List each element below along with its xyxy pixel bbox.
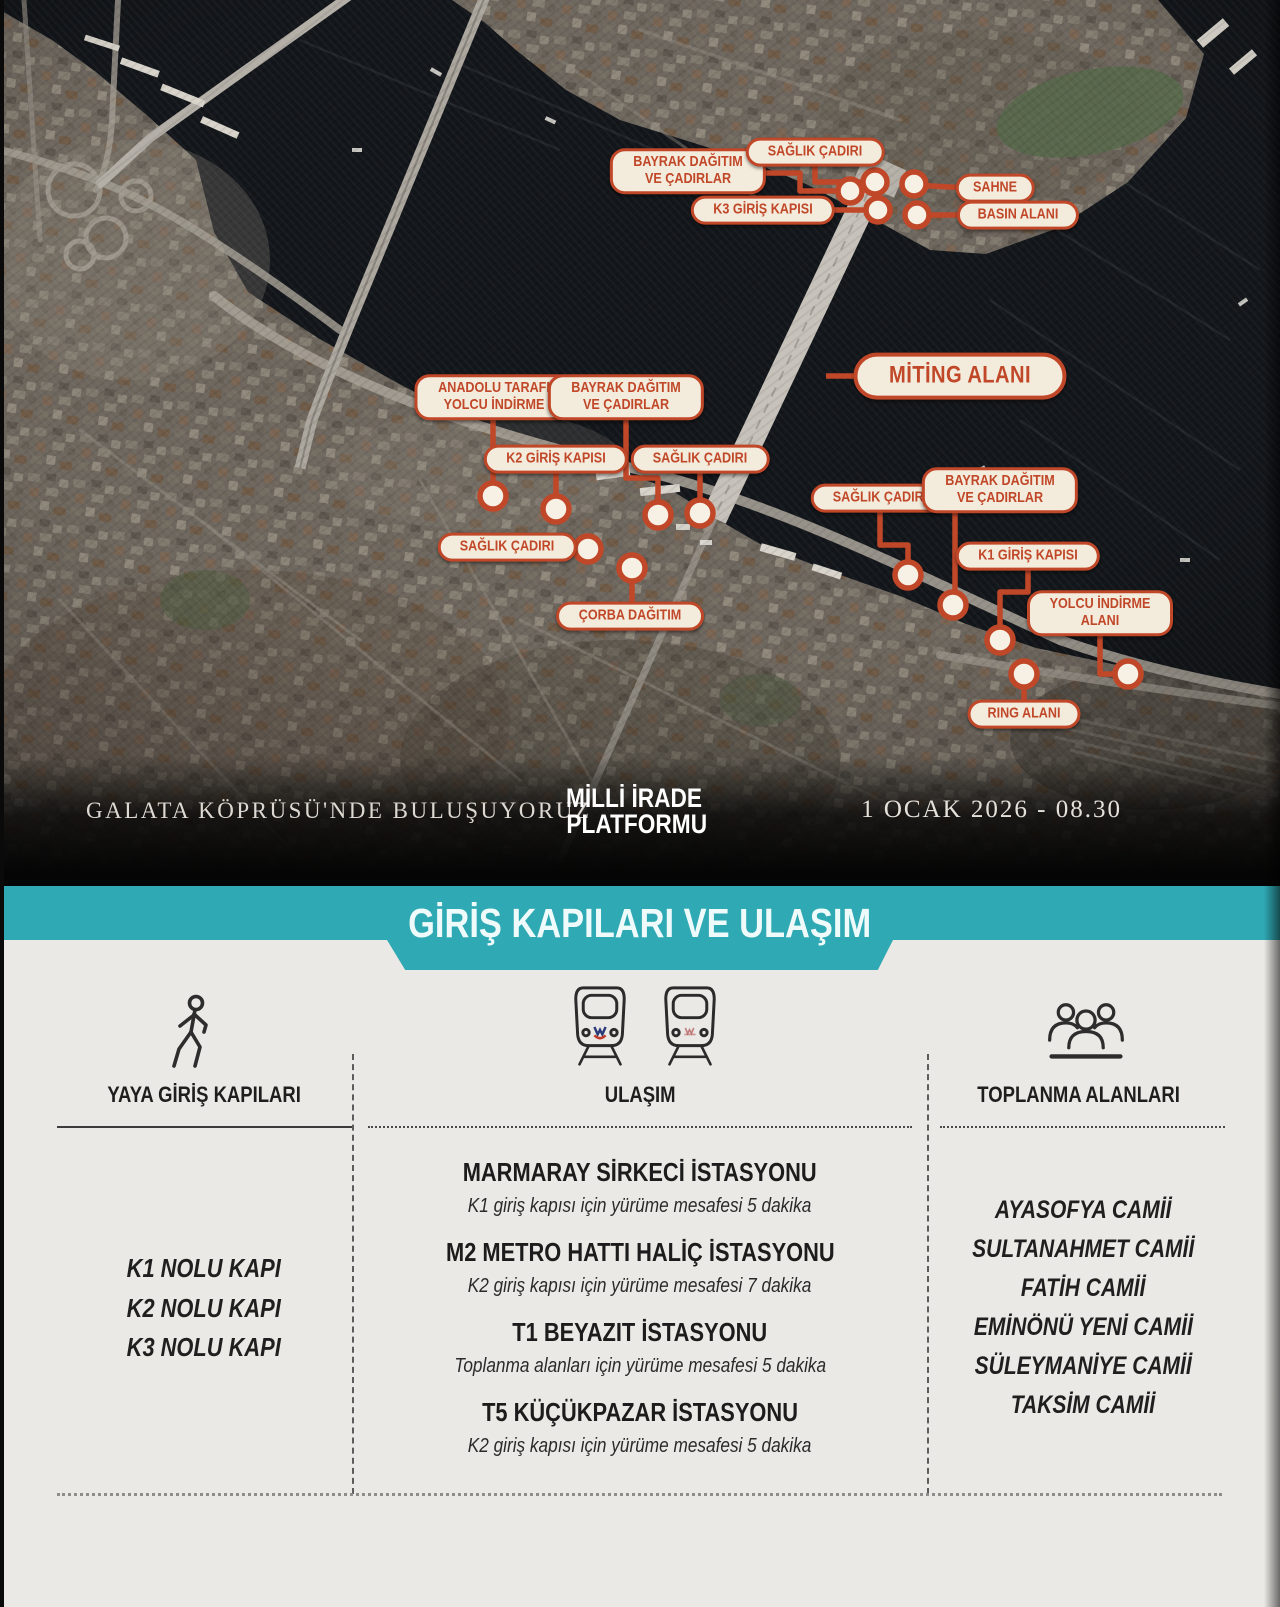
station-walk-distance: K2 giriş kapısı için yürüme mesafesi 7 d… <box>368 1269 912 1302</box>
right-edge-shadow <box>1264 0 1280 1607</box>
map-callout-yolcu-i-ndi-rme-alani: YOLCU İNDİRMEALANI <box>1027 590 1173 636</box>
gathering-list: AYASOFYA CAMİİSULTANAHMET CAMİİFATİH CAM… <box>940 1191 1226 1425</box>
gathering-item: SULTANAHMET CAMİİ <box>940 1230 1226 1269</box>
gate-item: K2 NOLU KAPI <box>58 1289 350 1329</box>
station-entry: T5 KÜÇÜKPAZAR İSTASYONUK2 giriş kapısı i… <box>368 1395 912 1462</box>
gate-item: K1 NOLU KAPI <box>58 1249 350 1289</box>
map-callout-sa-lik-adiri: SAĞLIK ÇADIRI <box>631 445 770 474</box>
station-walk-distance: K1 giriş kapısı için yürüme mesafesi 5 d… <box>368 1189 912 1222</box>
callout-leaders <box>0 0 1280 886</box>
map-callout-bayrak-da-itim-ve-adirlar: BAYRAK DAĞITIMVE ÇADIRLAR <box>610 148 766 194</box>
milli-irade-platformu-logo: MİLLİ İRADE PLATFORMU <box>553 786 703 837</box>
gathering-item: SÜLEYMANİYE CAMİİ <box>940 1347 1226 1386</box>
map-callout-orba-da-itim: ÇORBA DAĞITIM <box>556 602 704 631</box>
info-section: GİRİŞ KAPILARI VE ULAŞIM <box>0 886 1280 1607</box>
section-title: GİRİŞ KAPILARI VE ULAŞIM <box>0 900 1280 947</box>
divider-left <box>352 1054 354 1494</box>
satellite-map: BAYRAK DAĞITIMVE ÇADIRLARSAĞLIK ÇADIRIK3… <box>0 0 1280 886</box>
map-callout-bayrak-da-itim-ve-adirlar: BAYRAK DAĞITIMVE ÇADIRLAR <box>548 374 704 420</box>
station-name: T1 BEYAZIT İSTASYONU <box>368 1315 912 1349</box>
map-callout-k2-gi-ri-kapisi: K2 GİRİŞ KAPISI <box>484 445 628 474</box>
map-callout-k3-gi-ri-kapisi: K3 GİRİŞ KAPISI <box>691 196 835 225</box>
marmaray-train-icon <box>660 986 720 1073</box>
station-walk-distance: K2 giriş kapısı için yürüme mesafesi 5 d… <box>368 1429 912 1462</box>
gathering-item: AYASOFYA CAMİİ <box>940 1191 1226 1230</box>
map-callout-k1-gi-ri-kapisi: K1 GİRİŞ KAPISI <box>956 542 1100 571</box>
map-caption-bar: GALATA KÖPRÜSÜ'NDE BULUŞUYORUZ MİLLİ İRA… <box>0 756 1280 886</box>
map-callout-bayrak-da-itim-ve-adirlar: BAYRAK DAĞITIMVE ÇADIRLAR <box>922 467 1078 513</box>
map-callout-mi-ti-ng-alani: MİTİNG ALANI <box>853 353 1066 400</box>
map-callout-basin-alani: BASIN ALANI <box>957 201 1079 230</box>
gates-column-header: YAYA GİRİŞ KAPILARI <box>58 1082 350 1108</box>
station-name: MARMARAY SİRKECİ İSTASYONU <box>368 1155 912 1189</box>
stations-list: MARMARAY SİRKECİ İSTASYONUK1 giriş kapıs… <box>368 1155 912 1475</box>
gates-list: K1 NOLU KAPIK2 NOLU KAPIK3 NOLU KAPI <box>58 1249 350 1368</box>
walking-person-icon <box>166 994 222 1079</box>
gathering-item: FATİH CAMİİ <box>940 1269 1226 1308</box>
event-datetime: 1 OCAK 2026 - 08.30 <box>861 796 1122 824</box>
transport-header-rule <box>368 1126 912 1128</box>
meeting-place-text: GALATA KÖPRÜSÜ'NDE BULUŞUYORUZ <box>86 798 591 824</box>
map-callout-sahne: SAHNE <box>956 174 1035 203</box>
gate-item: K3 NOLU KAPI <box>58 1328 350 1368</box>
gathering-item: TAKSİM CAMİİ <box>940 1386 1226 1425</box>
left-edge-shadow <box>0 0 4 1607</box>
station-entry: M2 METRO HATTI HALİÇ İSTASYONUK2 giriş k… <box>368 1235 912 1302</box>
station-name: M2 METRO HATTI HALİÇ İSTASYONU <box>368 1235 912 1269</box>
metro-train-icon <box>570 986 630 1073</box>
gathering-header-rule <box>940 1126 1225 1128</box>
section-bottom-rule <box>57 1493 1222 1496</box>
divider-right <box>927 1054 929 1494</box>
crowd-icon <box>1042 998 1130 1072</box>
map-callout-sa-lik-adiri: SAĞLIK ÇADIRI <box>746 138 885 167</box>
gates-header-rule <box>57 1126 352 1128</box>
transport-column-header: ULAŞIM <box>368 1082 912 1108</box>
station-name: T5 KÜÇÜKPAZAR İSTASYONU <box>368 1395 912 1429</box>
station-entry: MARMARAY SİRKECİ İSTASYONUK1 giriş kapıs… <box>368 1155 912 1222</box>
gathering-column-header: TOPLANMA ALANLARI <box>932 1082 1226 1108</box>
logo-line-2: PLATFORMU <box>566 812 707 838</box>
map-callout-sa-lik-adiri: SAĞLIK ÇADIRI <box>438 533 577 562</box>
map-callout-ring-alani: RING ALANI <box>968 700 1081 729</box>
station-entry: T1 BEYAZIT İSTASYONUToplanma alanları iç… <box>368 1315 912 1382</box>
rally-infographic-page: BAYRAK DAĞITIMVE ÇADIRLARSAĞLIK ÇADIRIK3… <box>0 0 1280 1607</box>
station-walk-distance: Toplanma alanları için yürüme mesafesi 5… <box>368 1349 912 1382</box>
gathering-item: EMİNÖNÜ YENİ CAMİİ <box>940 1308 1226 1347</box>
